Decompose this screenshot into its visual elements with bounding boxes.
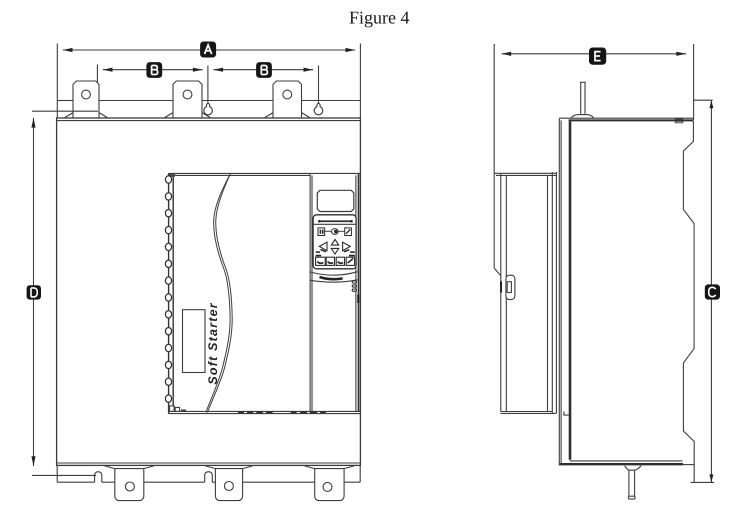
svg-text:Soft Starter: Soft Starter: [206, 302, 220, 384]
svg-text:Figure 4: Figure 4: [349, 8, 410, 28]
